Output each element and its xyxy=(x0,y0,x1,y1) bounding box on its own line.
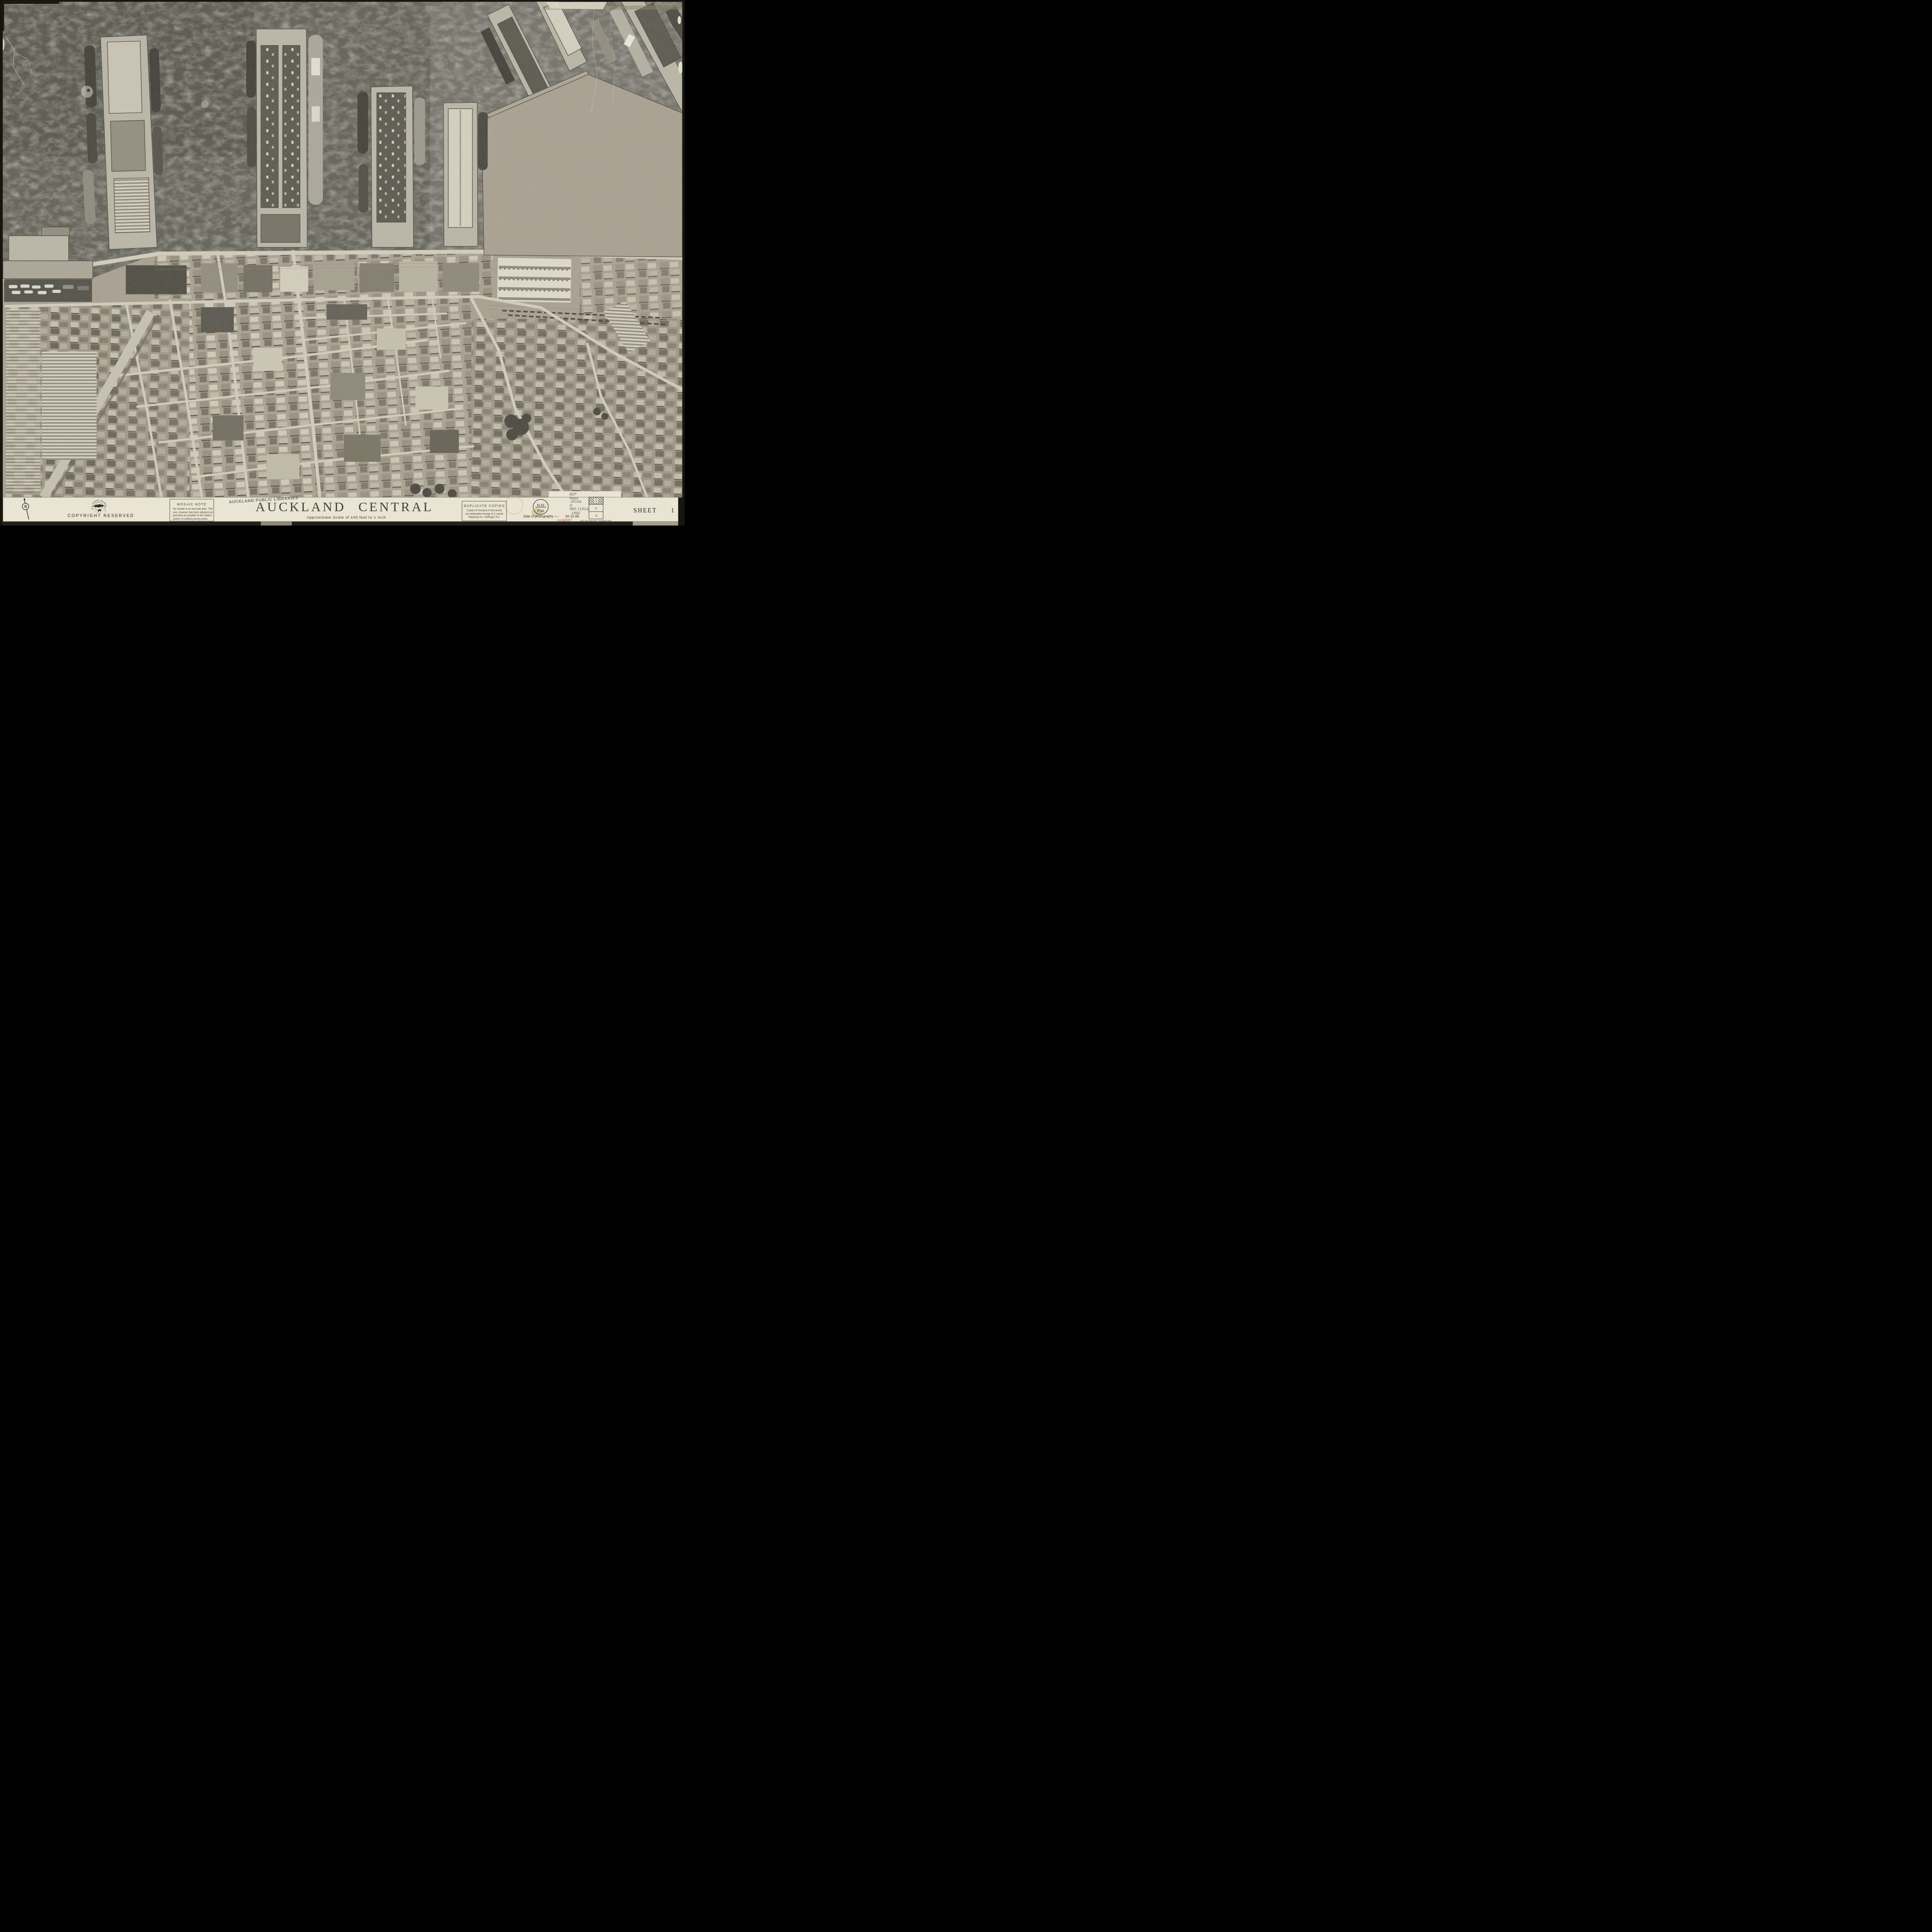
duplicate-copies-line: Copies of mosaics in this series xyxy=(467,509,502,512)
photography-date: 20·11·66 xyxy=(565,514,579,518)
handwritten-line: NZP xyxy=(569,492,577,496)
adjoining-sheet-1: 1 xyxy=(595,499,597,503)
mosaic-note-line: portion of existing survey plans. xyxy=(173,517,208,520)
sheet-number: 1 xyxy=(671,507,674,514)
aerial-mosaic-sheet: N N.Z. AERIAL MAPPING HASTINGS COPYRIGHT… xyxy=(0,0,685,526)
mosaic-note-line: one, however has been adjusted as xyxy=(173,511,213,514)
adjoining-sheet-2: 2 xyxy=(595,507,597,510)
aerial-photo xyxy=(0,0,683,498)
duplicate-copies-line: Mapping Ltd., Hastings, N.Z. xyxy=(468,515,500,519)
copyright-text: COPYRIGHT RESERVED xyxy=(68,513,134,518)
duplicate-copies-box: DUPLICATE COPIES Copies of mosaics in th… xyxy=(462,501,507,521)
handwritten-line: Maps xyxy=(569,496,579,500)
title-word: AUCKLAND xyxy=(255,499,346,514)
handwritten-line: 995.1101ap xyxy=(569,507,590,511)
file-stamp-bottom: P.16 xyxy=(537,509,544,513)
scale-note: Approximate Scale of 100 feet to 1 Inch xyxy=(307,515,386,519)
file-stamp-top: N.42 xyxy=(537,503,544,507)
adjoining-sheet-3: 3 xyxy=(595,514,597,517)
adjoining-sheets-label: ADJOINING SHEETS xyxy=(580,520,612,522)
map-sheet: N N.Z. AERIAL MAPPING HASTINGS COPYRIGHT… xyxy=(0,0,685,526)
title-word: CENTRAL xyxy=(358,499,433,514)
handwritten-line: 2610a xyxy=(570,500,582,503)
mosaic-note-heading: MOSAIC NOTE xyxy=(177,502,206,506)
photography-annotation: (SUNDAY) xyxy=(556,519,572,522)
sheet-title: AUCKLANDCENTRAL xyxy=(255,499,433,514)
duplicate-copies-heading: DUPLICATE COPIES xyxy=(464,504,505,508)
handwritten-line: D xyxy=(569,503,572,507)
north-label: N xyxy=(24,504,27,509)
mosaic-note-line: precisely as possible to the relative xyxy=(173,514,212,517)
mosaic-note-line: No mosaic is an accurate plan. This xyxy=(173,507,213,510)
handwritten-line: 1966 xyxy=(571,511,580,515)
photography-label: Date of photography :— xyxy=(524,514,559,518)
sheet-label: SHEET xyxy=(633,507,657,514)
duplicate-copies-line: are obtainable through N.Z. Aerial xyxy=(466,512,503,515)
